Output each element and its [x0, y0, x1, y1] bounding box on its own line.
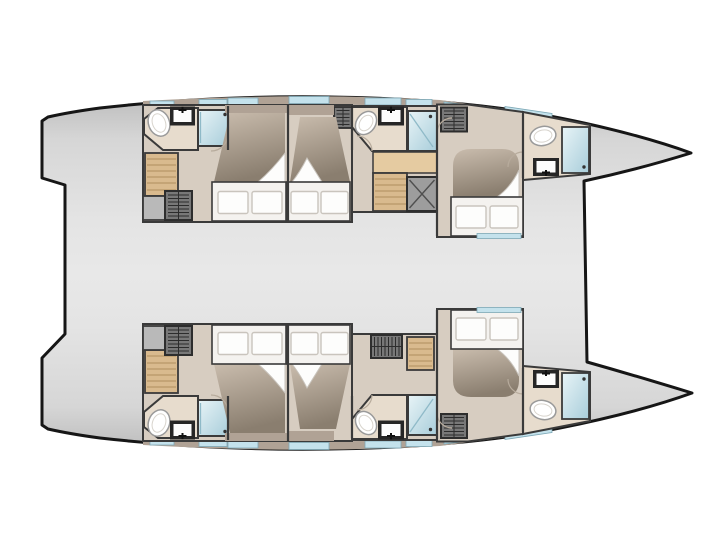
bed-pillow	[252, 192, 282, 214]
stairs-landing-port	[373, 152, 437, 173]
bed-pillow	[456, 206, 486, 228]
deck-window	[289, 443, 329, 450]
utility-locker-stbd	[143, 326, 165, 350]
bed-pillow	[218, 192, 248, 214]
deck-window	[365, 98, 401, 105]
bed-pillow	[291, 333, 318, 355]
floor-plan-svg	[0, 0, 728, 546]
bed-pillow	[321, 192, 348, 214]
shower-head-dot	[582, 377, 585, 380]
headwall-mid-stbd	[288, 431, 334, 441]
deck-window	[228, 98, 258, 105]
headwall-aft-stbd	[225, 433, 288, 441]
yacht-floor-plan	[0, 0, 728, 546]
bed-pillow	[456, 318, 486, 340]
shower-head-dot	[223, 113, 226, 116]
bed-pillow	[218, 333, 248, 355]
shower-head-dot	[223, 430, 226, 433]
shower-aft-port	[198, 110, 228, 146]
shower-head-dot	[429, 115, 432, 118]
deck-window	[365, 441, 401, 448]
bed-pillow	[291, 192, 318, 214]
stairs-mid-stbd	[407, 337, 434, 370]
shower-aft-stbd	[198, 400, 228, 436]
bed-pillow	[490, 206, 518, 228]
headwall-aft-port	[225, 105, 288, 113]
shower-head-dot	[429, 428, 432, 431]
deck-window	[228, 441, 258, 448]
hull-window-fwd-stbd	[477, 308, 521, 313]
bed-pillow	[490, 318, 518, 340]
bed-pillow	[321, 333, 348, 355]
headwall-mid-port	[288, 105, 334, 115]
hull-window-fwd-port	[477, 234, 521, 239]
bed-pillow	[252, 333, 282, 355]
shower-head-dot	[582, 165, 585, 168]
utility-locker-port	[143, 196, 165, 220]
deck-window	[289, 97, 329, 104]
